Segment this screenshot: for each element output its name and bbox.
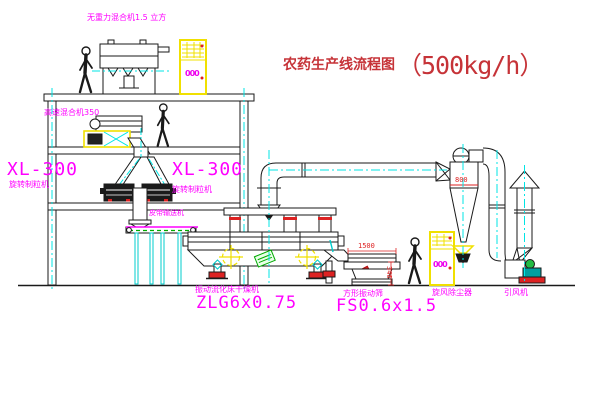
label-sieve-model: FS0.6x1.5 — [336, 298, 437, 315]
control-cabinet-top — [180, 40, 206, 94]
person-ground — [409, 238, 421, 283]
control-cabinet-ground — [430, 232, 454, 285]
dim-sieve-length: 1500 — [358, 243, 375, 250]
person-second-floor — [158, 104, 169, 146]
cabinet-ground-panel-symbol: 000 — [433, 261, 447, 269]
title-text: 农药生产线流程图 — [283, 54, 395, 74]
cyclone-separator — [450, 148, 483, 266]
cabinet-top-panel-symbol: 000 — [185, 70, 199, 78]
label-granulator-left-name: 旋转制粒机 — [9, 181, 49, 189]
label-cyclone: 旋风除尘器 — [432, 289, 472, 297]
person-top-floor — [80, 47, 92, 92]
dim-sieve-height: 346 — [385, 266, 392, 279]
dim-cyclone: 800 — [455, 177, 468, 184]
label-dryer-model: ZLG6x0.75 — [196, 295, 297, 312]
label-granulator-left-model: XL-300 — [7, 161, 78, 179]
label-belt-conveyor: 皮带输送机 — [149, 210, 184, 217]
title-capacity: （500kg/h） — [397, 46, 543, 82]
label-fan: 引风机 — [504, 289, 528, 297]
label-granulator-right-name: 旋转制粒机 — [172, 186, 212, 194]
granulator-left — [100, 184, 134, 202]
diagram-title: 农药生产线流程图 （500kg/h） — [283, 46, 543, 82]
fluid-bed-dryer — [183, 208, 344, 279]
label-high-speed-mixer: 高速混合机350 — [44, 109, 99, 117]
label-granulator-right-model: XL-300 — [172, 161, 243, 179]
label-no-gravity-mixer: 无重力混合机1.5 立方 — [87, 14, 166, 22]
duct-reducer — [436, 162, 450, 181]
no-gravity-mixer — [100, 40, 169, 94]
diagram-canvas: 无重力混合机1.5 立方 农药生产线流程图 （500kg/h） 高速混合机350… — [0, 0, 600, 403]
